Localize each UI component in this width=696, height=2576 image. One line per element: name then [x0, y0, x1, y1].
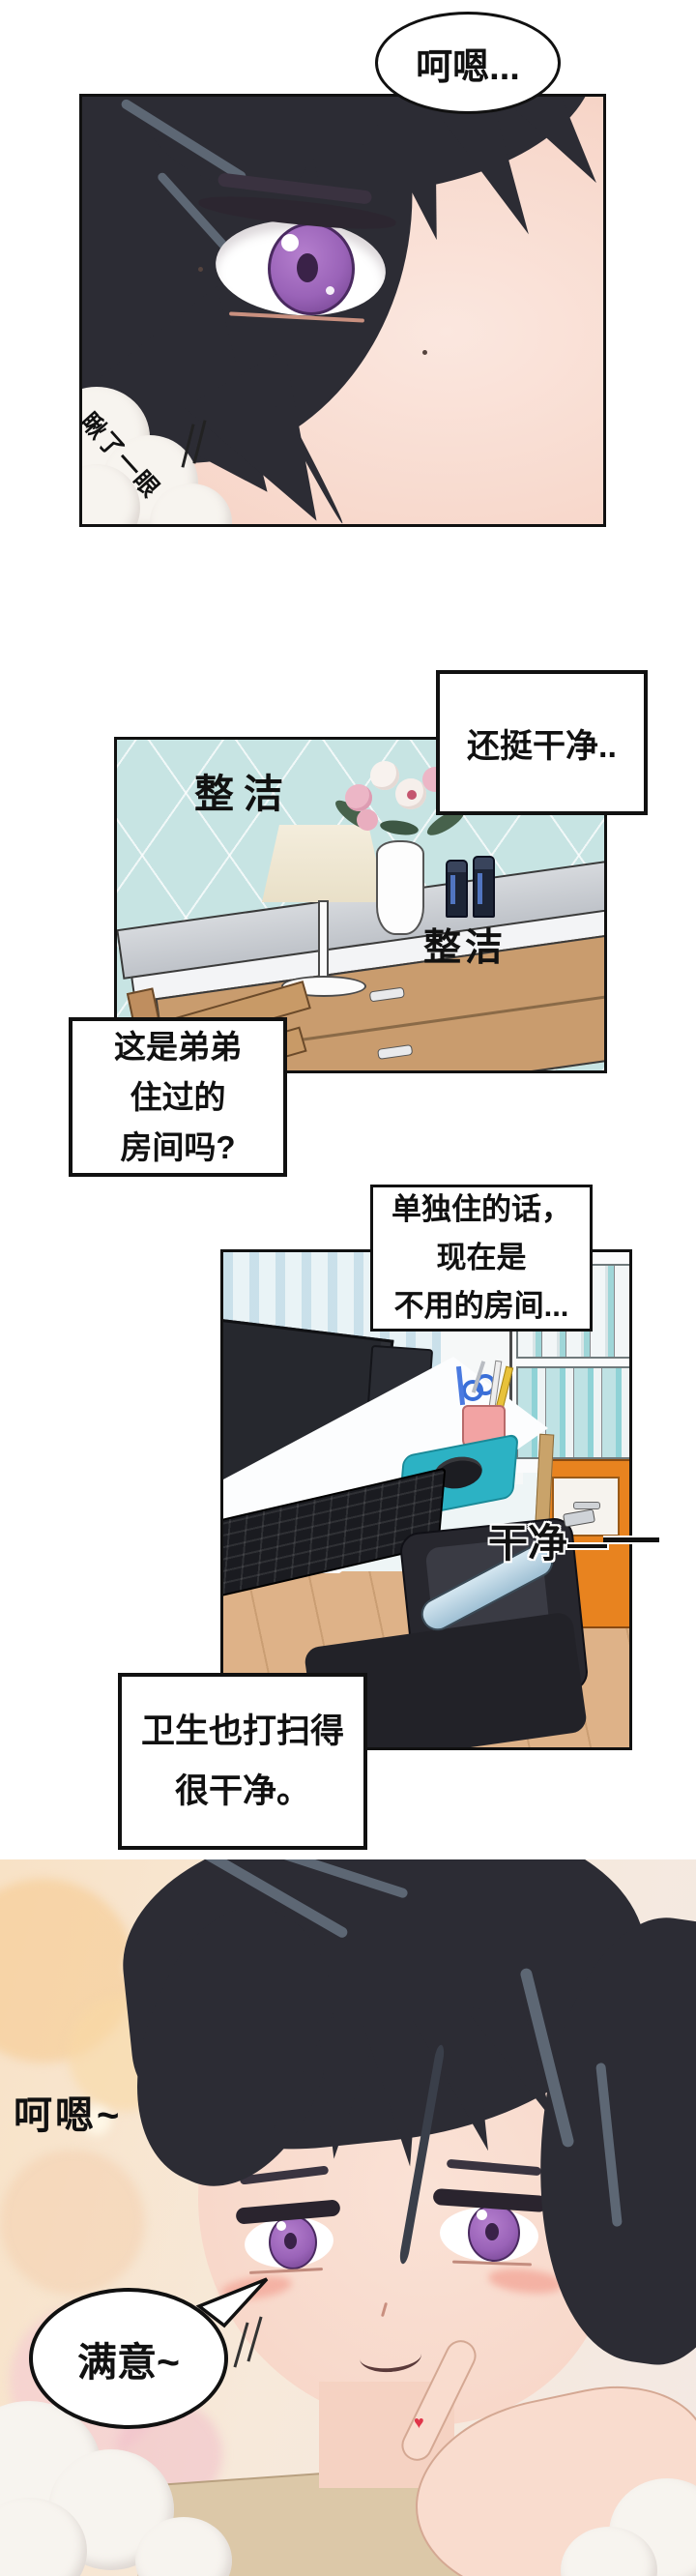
cabinet-handle — [573, 1502, 600, 1509]
spray-bottle — [446, 860, 468, 918]
eye-highlight — [281, 234, 299, 251]
spray-label-shine — [478, 873, 482, 904]
flower-pink — [357, 809, 378, 831]
speech-line: 单独住的话， — [391, 1186, 571, 1234]
sfx-hum2: 呵嗯~ — [14, 2084, 122, 2140]
speech-bubble-hum1: 呵嗯... — [375, 12, 561, 114]
flower-leaf — [379, 818, 420, 836]
sfx-tidy-2: 整洁 — [423, 918, 507, 972]
beauty-mark-2 — [422, 350, 427, 355]
caption-line: 卫生也打扫得 — [141, 1702, 344, 1762]
right-eye-highlight — [477, 2210, 487, 2220]
panel-4-smug-closeup: ♥ 呵嗯~ 满意~ — [0, 1859, 696, 2576]
caption-line: 很干净。 — [175, 1762, 310, 1822]
speech-box-quite-clean: 还挺干净.. — [436, 670, 648, 815]
caption-line: 房间吗? — [120, 1123, 235, 1173]
eye-pupil — [297, 253, 318, 282]
left-eye-pupil — [284, 2233, 297, 2249]
caption-brothers-room: 这是弟弟 住过的 房间吗? — [69, 1017, 287, 1177]
spray-bottle — [473, 856, 495, 918]
caption-line: 这是弟弟 — [114, 1022, 242, 1072]
comic-page: { "comic": { "panel1": { "bubble": "呵嗯..… — [0, 0, 696, 2576]
sfx-clean: 干净— — [488, 1510, 659, 1568]
flower-center — [407, 790, 417, 800]
caption-line: 住过的 — [130, 1072, 226, 1123]
vase — [376, 840, 424, 935]
eye-highlight-small — [326, 286, 334, 295]
right-eye-pupil — [485, 2223, 499, 2240]
speech-line: 不用的房间... — [394, 1282, 569, 1331]
speech-line: 现在是 — [437, 1234, 527, 1282]
sfx-tidy-1: 整洁 — [194, 761, 293, 819]
dash-extension — [603, 1537, 659, 1542]
heart-icon: ♥ — [414, 2413, 424, 2433]
lamp-stand — [318, 900, 329, 983]
sfx-clean-text: 干净— — [488, 1510, 607, 1568]
panel-1-face-closeup: 瞅了一眼 — [79, 94, 606, 527]
binders-row-bottom — [516, 1366, 632, 1459]
lamp-shade — [262, 825, 386, 902]
speech-bubble-satisfied: 满意~ — [29, 2288, 228, 2429]
caption-hygiene: 卫生也打扫得 很干净。 — [118, 1673, 367, 1850]
flower-pink — [345, 784, 372, 811]
speech-bubble-satisfied-text: 满意~ — [77, 2329, 180, 2387]
flower-white — [370, 761, 399, 790]
bokeh-warm — [0, 2150, 145, 2295]
speech-box-quite-clean-text: 还挺干净.. — [467, 719, 617, 767]
beauty-mark — [198, 267, 203, 272]
speech-bubble-hum1-text: 呵嗯... — [416, 37, 520, 90]
spray-label-shine — [450, 875, 455, 904]
left-eye-highlight — [276, 2221, 286, 2231]
speech-box-unused-room: 单独住的话， 现在是 不用的房间... — [370, 1185, 593, 1332]
